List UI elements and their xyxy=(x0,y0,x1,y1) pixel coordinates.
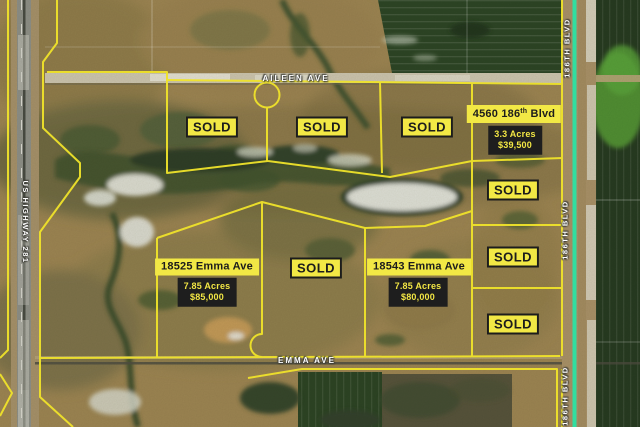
map-canvas[interactable]: SOLD SOLD SOLD SOLD SOLD SOLD SOLD 4560 … xyxy=(0,0,640,427)
terrain xyxy=(0,0,640,427)
satellite-map-image xyxy=(0,0,640,427)
road-highlight-186th xyxy=(573,0,577,427)
